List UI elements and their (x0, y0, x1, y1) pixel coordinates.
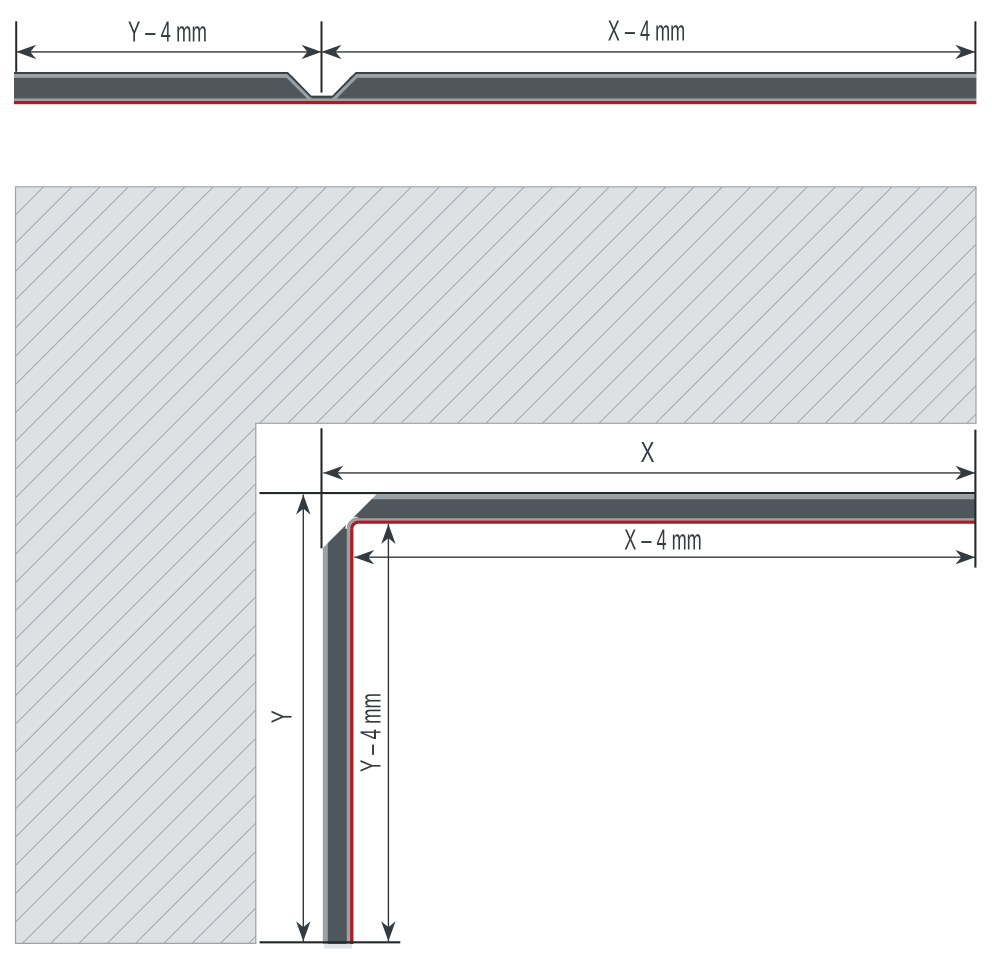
svg-text:X – 4 mm: X – 4 mm (608, 15, 686, 47)
svg-text:X: X (641, 437, 655, 469)
svg-text:X – 4 mm: X – 4 mm (624, 525, 702, 557)
svg-text:Y: Y (267, 710, 299, 723)
svg-text:Y – 4 mm: Y – 4 mm (128, 16, 207, 48)
svg-text:Y – 4 mm: Y – 4 mm (356, 693, 388, 772)
